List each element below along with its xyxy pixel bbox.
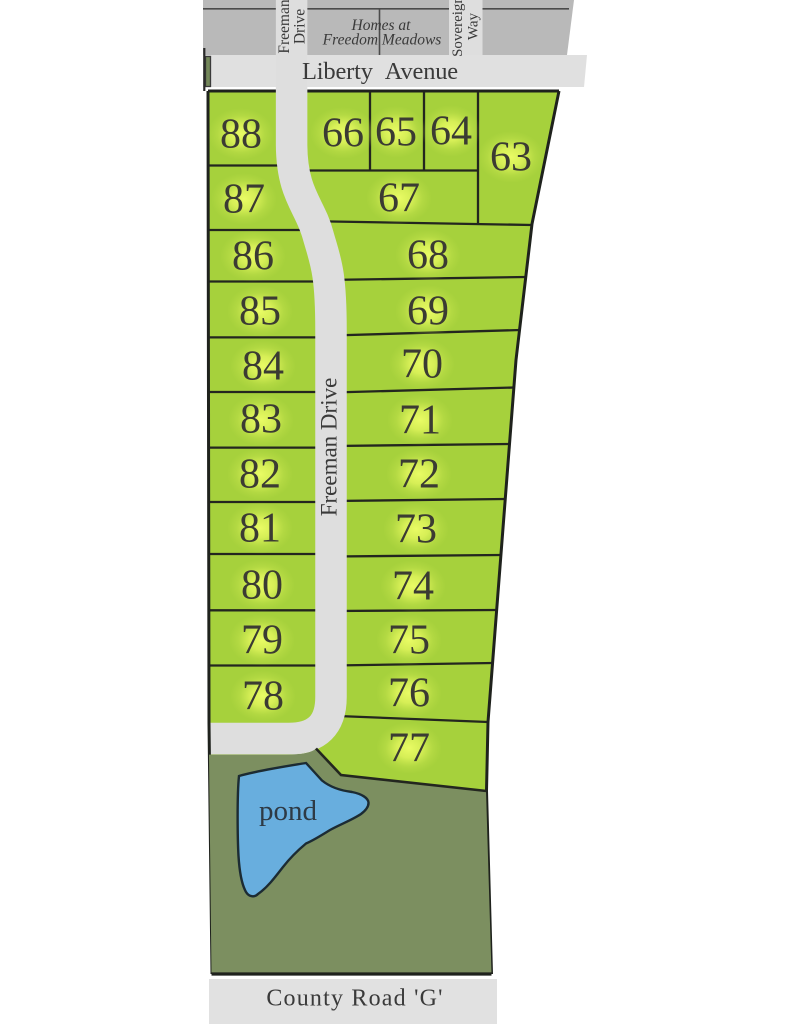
svg-text:Liberty Avenue: Liberty Avenue [302,58,458,85]
svg-text:80: 80 [241,563,283,609]
svg-text:County Road 'G': County Road 'G' [266,986,443,1012]
svg-text:72: 72 [398,452,440,498]
svg-text:88: 88 [220,112,262,158]
svg-text:67: 67 [378,176,420,222]
svg-text:66: 66 [322,111,364,157]
svg-text:86: 86 [232,234,274,280]
svg-text:pond: pond [259,795,318,827]
svg-text:Sovereign: Sovereign [450,0,466,57]
svg-text:76: 76 [388,671,430,717]
svg-text:85: 85 [239,289,281,335]
svg-text:Drive: Drive [292,9,309,44]
svg-text:84: 84 [242,344,284,390]
svg-text:82: 82 [239,452,281,498]
svg-text:77: 77 [388,726,430,772]
svg-text:63: 63 [490,135,532,181]
svg-text:81: 81 [239,506,281,552]
svg-text:73: 73 [395,507,437,553]
svg-text:64: 64 [430,109,472,155]
svg-text:87: 87 [223,177,265,223]
svg-text:70: 70 [401,342,443,388]
svg-text:Way: Way [466,12,482,40]
svg-text:Freedom Meadows: Freedom Meadows [322,32,442,49]
svg-text:71: 71 [399,398,441,444]
svg-text:79: 79 [241,618,283,664]
svg-text:75: 75 [388,618,430,664]
svg-text:83: 83 [240,397,282,443]
svg-text:65: 65 [375,110,417,156]
svg-text:Freeman Drive: Freeman Drive [317,378,342,517]
svg-text:68: 68 [407,233,449,279]
svg-text:69: 69 [407,289,449,335]
svg-text:Freeman: Freeman [276,0,293,54]
svg-text:74: 74 [392,564,434,610]
svg-text:78: 78 [242,674,284,720]
